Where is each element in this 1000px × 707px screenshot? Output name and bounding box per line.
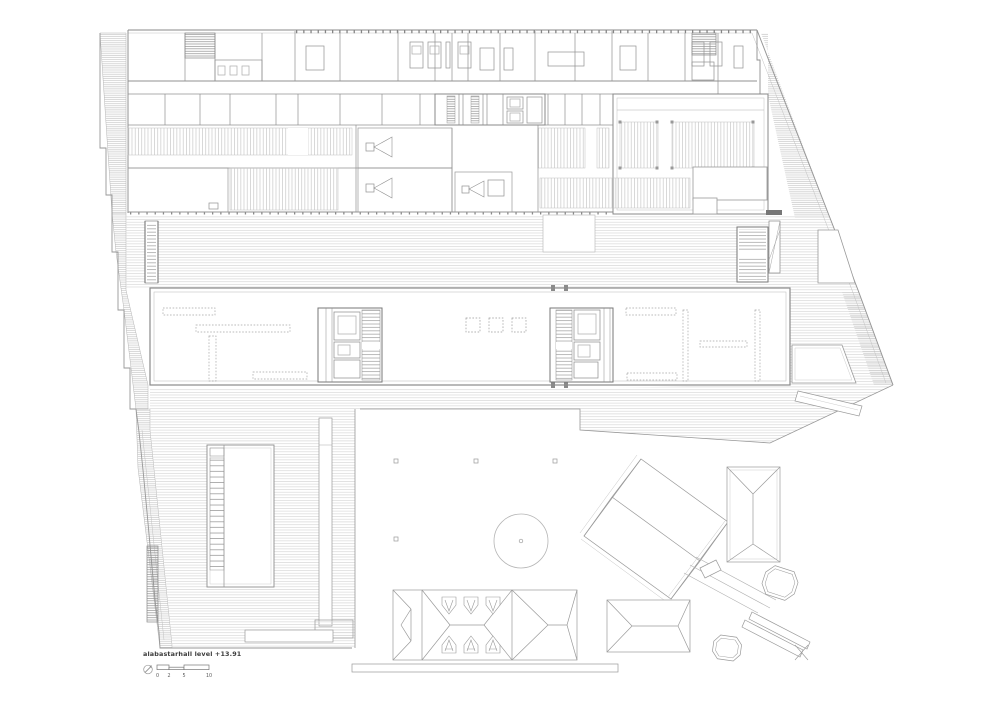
- scale-tick-0: 0: [156, 673, 159, 679]
- hall-stair-core-west: [318, 308, 382, 382]
- plaza-edge-wall: [352, 664, 618, 672]
- scale-bar: 0 2 5 10: [156, 665, 212, 679]
- historic-building-roofs: [580, 455, 810, 662]
- upper-gallery-wing: [128, 30, 768, 214]
- pavilion-roof: [393, 590, 577, 660]
- scale-tick-2: 2: [168, 673, 171, 679]
- annotation: alabastarhall level +13.91 0 2 5 10: [143, 650, 241, 679]
- hall-stair-core-east: [550, 308, 613, 382]
- tower-south: [711, 634, 742, 662]
- fountain-circle: [494, 514, 548, 568]
- plan-label: alabastarhall level +13.91: [143, 650, 241, 658]
- floor-plan-page: alabastarhall level +13.91 0 2 5 10: [0, 0, 1000, 707]
- floor-plan-drawing: alabastarhall level +13.91 0 2 5 10: [0, 0, 1000, 707]
- scale-tick-5: 5: [183, 673, 186, 679]
- tower-northeast: [759, 563, 801, 602]
- north-arrow-icon: [144, 665, 153, 674]
- scale-tick-10: 10: [206, 673, 212, 679]
